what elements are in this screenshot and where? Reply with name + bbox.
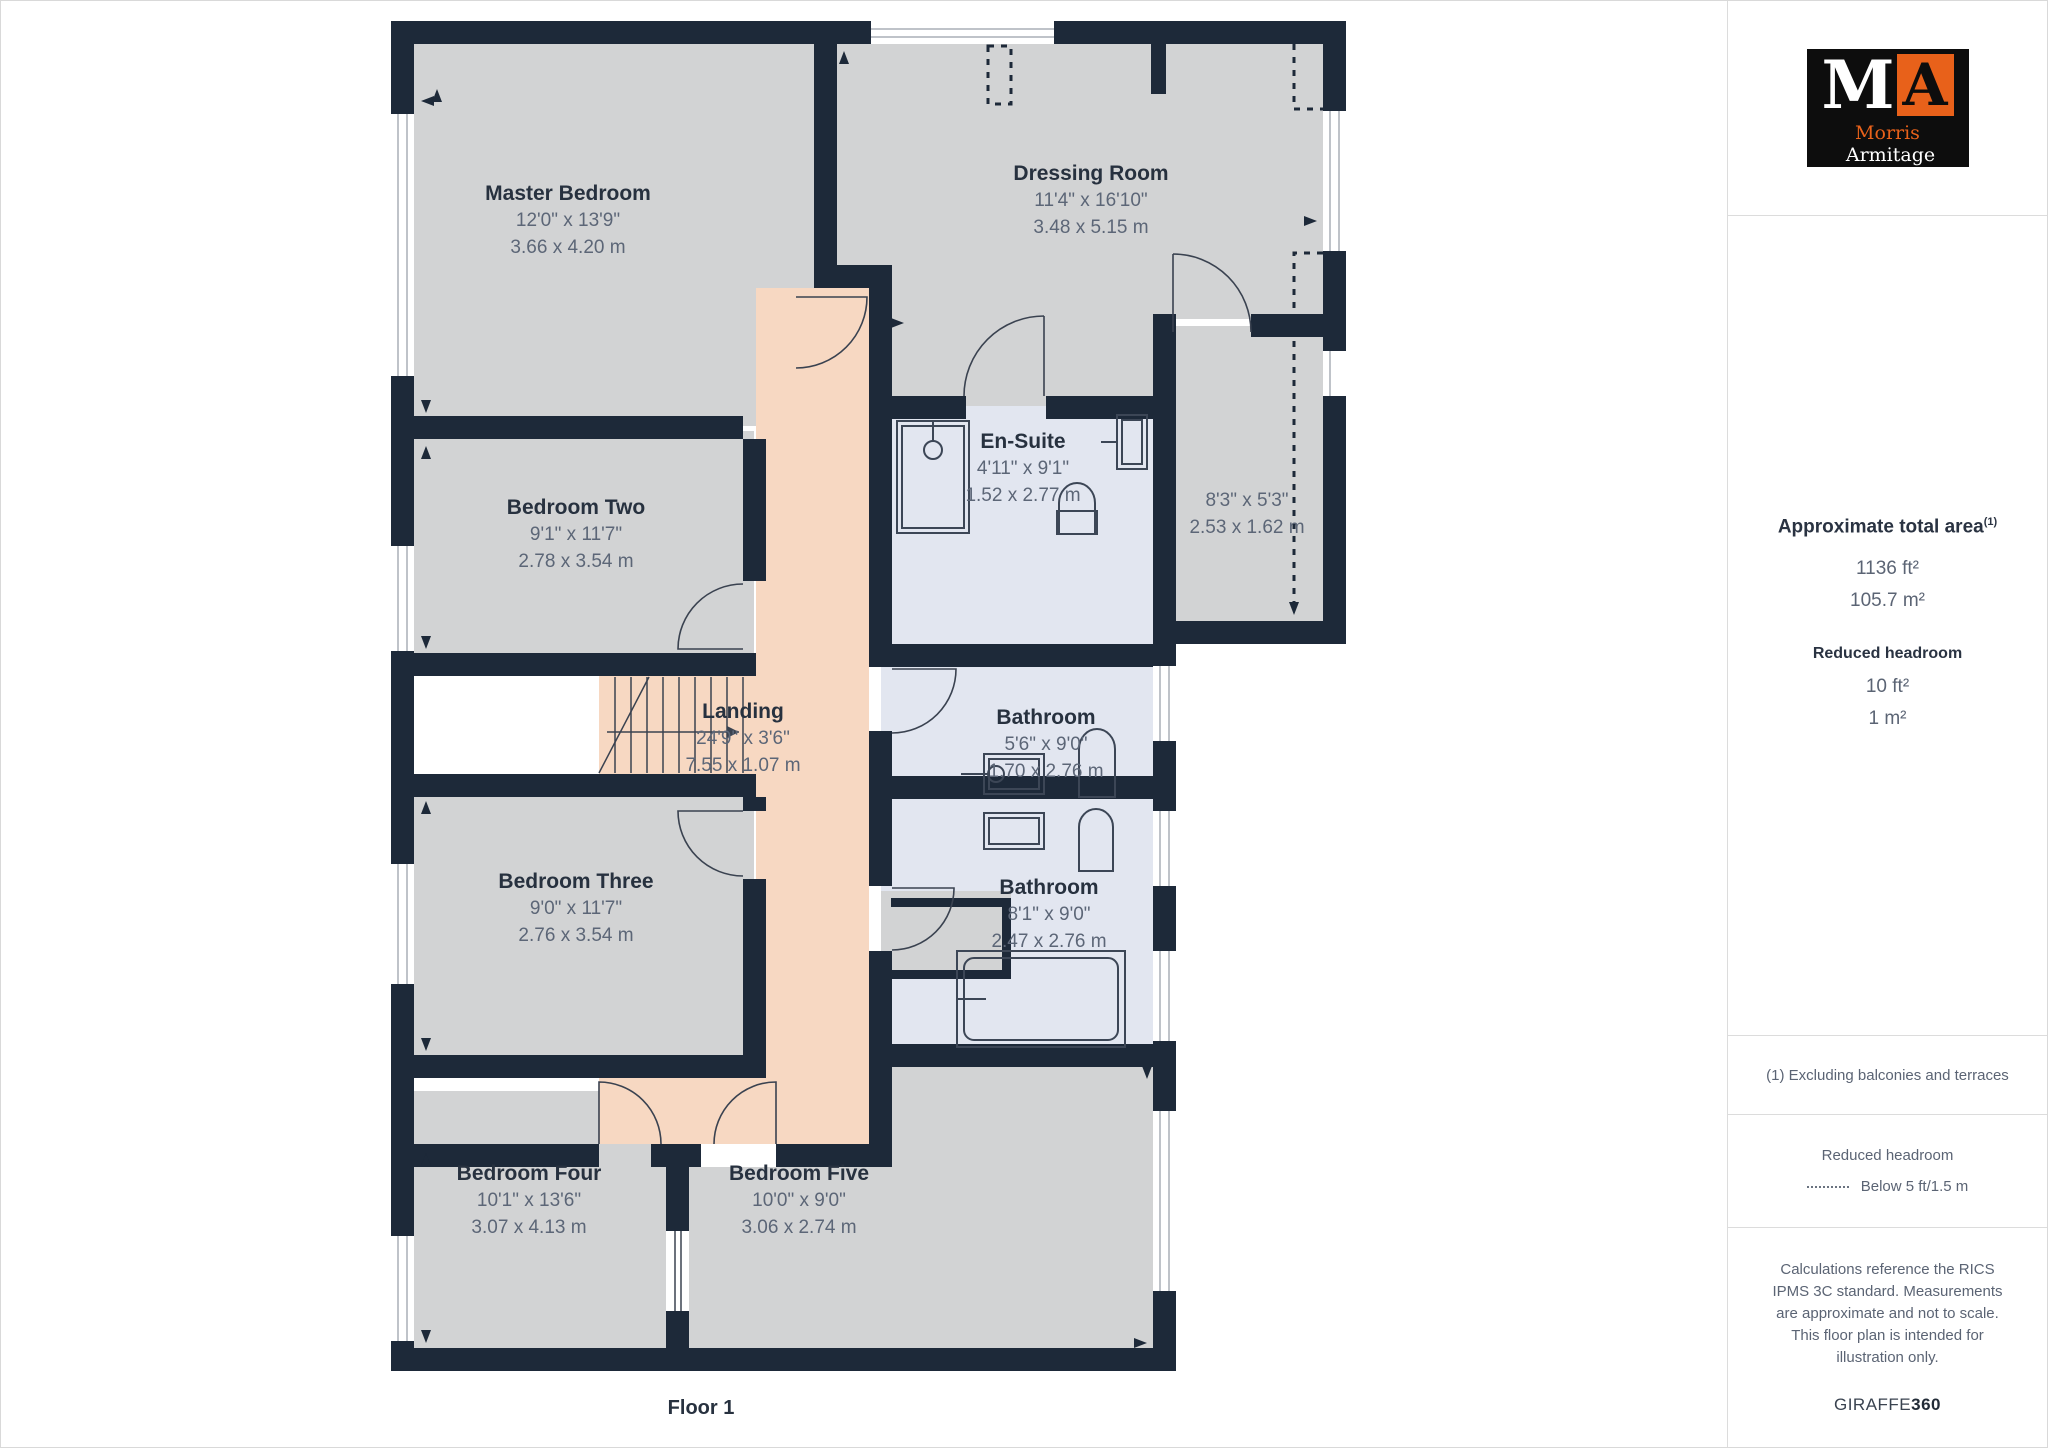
area-summary-section: Approximate total area(1) 1136 ft² 105.7…: [1728, 216, 2047, 1036]
logo-letter-m: M: [1821, 50, 1894, 120]
total-area-metric: 105.7 m²: [1850, 585, 1925, 617]
floor-plan-graphic: [1, 1, 1701, 1448]
footnote-section: (1) Excluding balconies and terraces: [1728, 1036, 2047, 1115]
reduced-headroom-imperial: 10 ft²: [1866, 671, 1909, 703]
agency-logo: M A Morris Armitage: [1807, 49, 1969, 167]
disclaimer-text: Calculations reference the RICS IPMS 3C …: [1762, 1259, 2014, 1369]
logo-letter-a: A: [1897, 54, 1954, 116]
floor-title: Floor 1: [668, 1397, 735, 1420]
legend-label: Below 5 ft/1.5 m: [1861, 1178, 1969, 1195]
disclaimer-section: Calculations reference the RICS IPMS 3C …: [1728, 1228, 2047, 1445]
info-sidebar: M A Morris Armitage Approximate total ar…: [1727, 1, 2047, 1447]
floorplan-page: Master Bedroom 12'0" x 13'9" 3.66 x 4.20…: [0, 0, 2048, 1448]
legend-title: Reduced headroom: [1822, 1147, 1954, 1164]
legend-section: Reduced headroom Below 5 ft/1.5 m: [1728, 1115, 2047, 1228]
giraffe360-brand: GIRAFFE360: [1834, 1395, 1941, 1415]
reduced-headroom-metric: 1 m²: [1869, 703, 1907, 735]
total-area-imperial: 1136 ft²: [1856, 553, 1919, 585]
reduced-headroom-title: Reduced headroom: [1813, 645, 1962, 663]
dashed-line-icon: [1807, 1186, 1849, 1188]
logo-name-last: Armitage: [1846, 144, 1935, 166]
area-footnote: (1) Excluding balconies and terraces: [1766, 1067, 2009, 1084]
total-area-title: Approximate total area(1): [1778, 516, 1997, 538]
agency-logo-section: M A Morris Armitage: [1728, 1, 2047, 216]
logo-name-first: Morris: [1855, 122, 1920, 144]
